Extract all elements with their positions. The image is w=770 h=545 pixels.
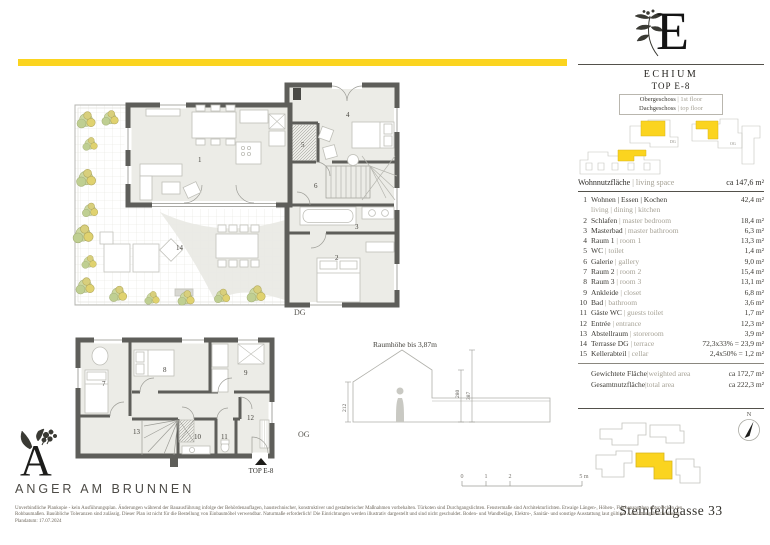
room-row: 11Gäste WC | guests toilet1,7 m² bbox=[578, 308, 764, 318]
site-plan bbox=[588, 415, 738, 495]
scale-0: 0 bbox=[461, 474, 464, 480]
room-row: 9Ankleide | closet6,8 m² bbox=[578, 288, 764, 298]
room-label-10: 10 bbox=[194, 433, 202, 441]
keyplan-og-label: OG bbox=[730, 141, 736, 146]
room-label-6: 6 bbox=[314, 182, 318, 190]
room-row: 14Terrasse DG | terrace72,3x33% = 23,9 m… bbox=[578, 339, 764, 349]
keyplan-dg-label: DG bbox=[670, 139, 676, 144]
og-entry-label: TOP E-8 bbox=[249, 467, 274, 474]
compass-icon bbox=[737, 418, 761, 442]
room-label-9: 9 bbox=[244, 369, 248, 377]
og-plan-tag: OG bbox=[298, 430, 310, 439]
legal-line-3: Plandatum: 17.07.2024 bbox=[15, 519, 763, 525]
summary-rows: Gewichtete Fläche | weighted areaca 172,… bbox=[578, 366, 764, 390]
dg-living-block: 1 bbox=[125, 102, 291, 210]
divider bbox=[578, 64, 764, 65]
living-space-value: ca 147,6 m² bbox=[726, 178, 764, 187]
room-label-3: 3 bbox=[355, 223, 359, 231]
room-label-8: 8 bbox=[163, 366, 167, 374]
summary-row: Gewichtete Fläche | weighted areaca 172,… bbox=[578, 368, 764, 379]
building-letter: E bbox=[656, 1, 689, 61]
north-compass: N bbox=[736, 411, 762, 447]
room-label-4: 4 bbox=[346, 111, 350, 119]
project-name: ECHIUM bbox=[578, 69, 764, 80]
keyplan-diagram: DG OG bbox=[578, 116, 764, 176]
divider bbox=[578, 191, 764, 192]
floor-plan-sheet: { "accent_color": "#FBD41F", "wall_color… bbox=[0, 0, 770, 545]
room-row: 12Entrée | entrance12,3 m² bbox=[578, 319, 764, 329]
room-row: 10Bad | bathroom3,6 m² bbox=[578, 298, 764, 308]
room-row: 2Schlafen | master bedroom18,4 m² bbox=[578, 216, 764, 226]
room-row: 5WC | toilet1,4 m² bbox=[578, 246, 764, 256]
room-label-14: 14 bbox=[176, 244, 184, 252]
room-row: 6Galerie | gallery9,0 m² bbox=[578, 257, 764, 267]
brand-name: ANGER AM BRUNNEN bbox=[15, 482, 194, 496]
room-row: 7Raum 2 | room 215,4 m² bbox=[578, 267, 764, 277]
room-label-7: 7 bbox=[102, 380, 106, 388]
compass-n-label: N bbox=[736, 411, 762, 418]
scale-1: 1 bbox=[485, 474, 488, 480]
legal-disclaimer: Unverbindliche Plankopie - kein Ausführu… bbox=[15, 506, 763, 525]
dim-387: 387 bbox=[466, 392, 472, 401]
room-label-5: 5 bbox=[301, 141, 305, 149]
summary-row: Gesamtnutzfläche | total areaca 222,3 m² bbox=[578, 379, 764, 390]
floor-line-1: Obergeschoss | 1st floor bbox=[623, 96, 719, 105]
scale-2: 2 bbox=[509, 474, 512, 480]
person-silhouette bbox=[396, 388, 404, 423]
dimension-lines bbox=[345, 350, 475, 422]
room-row: 13Abstellraum | storeroom3,9 m² bbox=[578, 329, 764, 339]
og-floor-plan: TOP E-8 7 8 9 13 10 11 12 OG bbox=[70, 334, 315, 474]
room-table: 1Wohnen | Essen | Kochen42,4 m²living | … bbox=[578, 195, 764, 360]
room-label-12: 12 bbox=[247, 414, 255, 422]
room-label-1: 1 bbox=[198, 156, 202, 164]
room-row: 3Masterbad | master bathroom6,3 m² bbox=[578, 226, 764, 236]
room-row: 4Raum 1 | room 113,3 m² bbox=[578, 236, 764, 246]
section-drawing: Raumhöhe bis 3,87m 212 280 387 bbox=[335, 332, 565, 432]
room-label-13: 13 bbox=[133, 428, 141, 436]
section-title: Raumhöhe bis 3,87m bbox=[373, 340, 437, 349]
dg-right-wing: 4 5 6 3 2 bbox=[287, 82, 401, 309]
room-label-2: 2 bbox=[335, 254, 339, 262]
site-plan-section: N bbox=[578, 409, 764, 501]
room-label-11: 11 bbox=[221, 433, 228, 441]
unit-number: TOP E-8 bbox=[578, 81, 764, 91]
dg-plan-tag: DG bbox=[294, 308, 306, 317]
brand-logo: A bbox=[14, 427, 62, 479]
room-row: 8Raum 3 | room 313,1 m² bbox=[578, 277, 764, 287]
highlighted-building bbox=[636, 453, 672, 479]
room-row-sub: living | dining | kitchen bbox=[578, 205, 764, 215]
bed-room8 bbox=[134, 350, 174, 376]
dg-floor-plan: 14 bbox=[64, 72, 404, 320]
legal-line-2: Rohbaumaßen. Bauübliche Toleranzen sind … bbox=[15, 512, 763, 518]
unit-info-panel: E ECHIUM TOP E-8 Obergeschoss | 1st floo… bbox=[578, 0, 764, 519]
room-row: 15Kellerabteil | cellar2,4x50% = 1,2 m² bbox=[578, 349, 764, 359]
floor-line-2: Dachgeschoss | top floor bbox=[623, 105, 719, 114]
building-logo: E bbox=[578, 0, 764, 64]
dim-212: 212 bbox=[342, 404, 348, 413]
scale-bar: 0 1 2 5 m bbox=[452, 468, 597, 494]
floors-box: Obergeschoss | 1st floor Dachgeschoss | … bbox=[619, 94, 723, 115]
room-row: 1Wohnen | Essen | Kochen42,4 m² bbox=[578, 195, 764, 205]
accent-bar bbox=[18, 59, 567, 66]
living-space-row: Wohnnutzfläche | living space ca 147,6 m… bbox=[578, 178, 764, 191]
dim-280: 280 bbox=[455, 390, 461, 399]
divider bbox=[578, 363, 764, 364]
